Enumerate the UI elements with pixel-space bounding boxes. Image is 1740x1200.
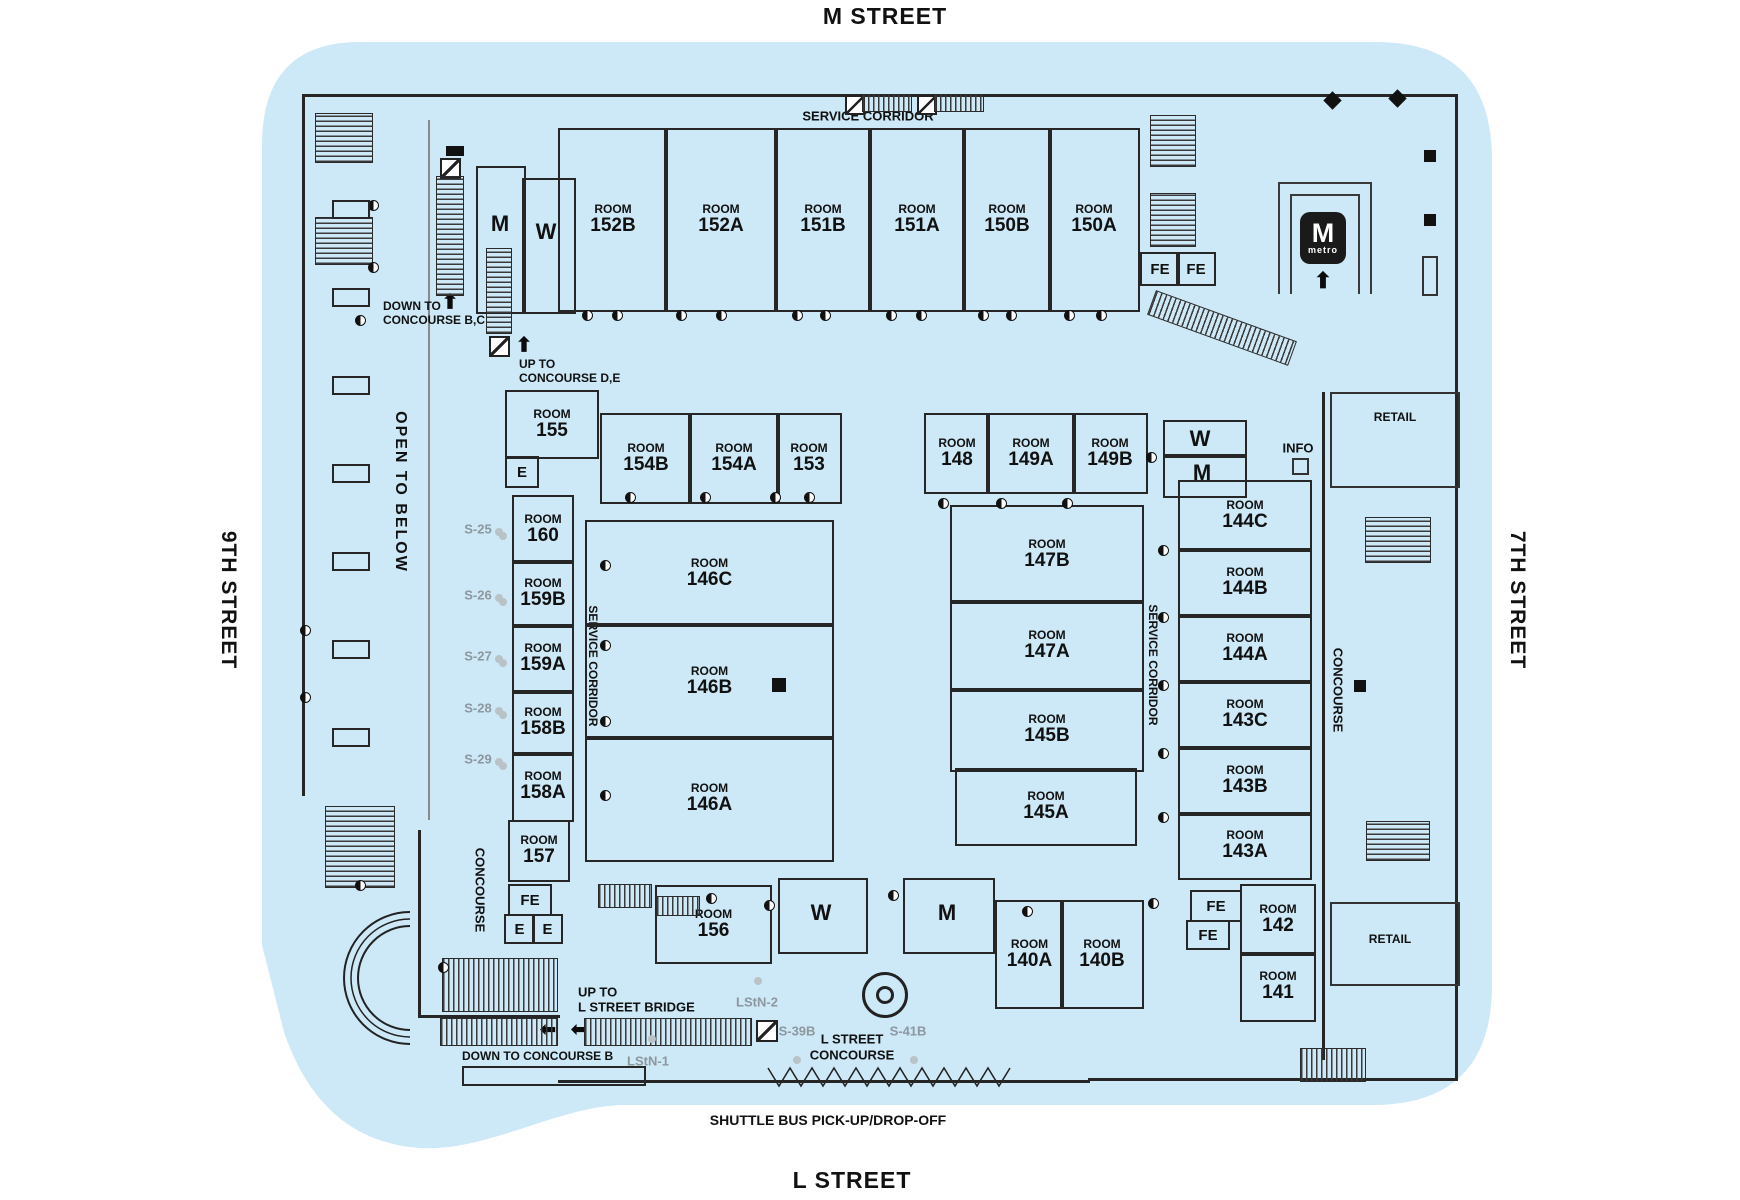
door-marker <box>1158 545 1169 556</box>
info-desk-icon <box>1292 458 1309 475</box>
location-dot <box>754 977 762 985</box>
room-number: 143A <box>1222 841 1267 863</box>
door-marker <box>368 262 379 273</box>
down-concourse-bc-label-2: CONCOURSE B,C <box>383 314 485 328</box>
room-number: 145B <box>1024 725 1069 747</box>
room-141: ROOM141 <box>1240 952 1316 1022</box>
stair-code-s-25: S-25 <box>464 523 491 538</box>
room-158A: ROOM158A <box>512 752 574 822</box>
door-marker <box>706 893 717 904</box>
escalator-hatch <box>584 1018 752 1046</box>
room-word: ROOM <box>1226 632 1263 644</box>
stair-hatch <box>1365 517 1431 563</box>
room-number: 143C <box>1222 710 1267 732</box>
restroom-label-bottom-m: M <box>938 900 956 926</box>
door-marker <box>716 310 727 321</box>
room-160: ROOM160 <box>512 495 574 564</box>
door-marker <box>938 498 949 509</box>
column-marker <box>1424 214 1436 226</box>
room-151A: ROOM151A <box>868 128 966 312</box>
door-marker <box>1006 310 1017 321</box>
location-dot <box>648 1035 656 1043</box>
up-concourse-de-label-1: UP TO <box>519 358 555 372</box>
door-marker <box>600 790 611 801</box>
location-dot <box>793 1056 801 1064</box>
open-to-below-label: OPEN TO BELOW <box>391 411 409 573</box>
door-marker <box>764 900 775 911</box>
facility-fe-top-1: FE <box>1140 252 1180 286</box>
door-marker <box>600 716 611 727</box>
column-pill <box>332 728 370 747</box>
room-154B: ROOM154B <box>600 413 692 504</box>
location-dot <box>499 762 507 770</box>
room-number: 145A <box>1023 802 1068 824</box>
code-s41b: S-41B <box>890 1025 927 1040</box>
room-word: ROOM <box>524 642 561 654</box>
door-marker <box>300 625 311 636</box>
code-lstn2: LStN-2 <box>736 996 778 1011</box>
room-number: 148 <box>941 449 973 471</box>
room-number: 149A <box>1008 449 1053 471</box>
door-marker <box>300 692 311 703</box>
room-number: 143B <box>1222 776 1267 798</box>
room-word: ROOM <box>1028 538 1065 550</box>
room-154A: ROOM154A <box>688 413 780 504</box>
room-number: 144B <box>1222 578 1267 600</box>
retail-bottom-label: RETAIL <box>1369 933 1411 947</box>
room-word: ROOM <box>804 203 841 215</box>
stair-code-s-27: S-27 <box>464 650 491 665</box>
retail-top-label: RETAIL <box>1374 411 1416 425</box>
l-street-concourse-label-1: L STREET <box>821 1033 884 1048</box>
room-word: ROOM <box>695 908 732 920</box>
location-dot <box>499 598 507 606</box>
door-marker <box>1022 906 1033 917</box>
room-word: ROOM <box>1091 437 1128 449</box>
facility-fe-right-2: FE <box>1186 920 1230 950</box>
room-144B: ROOM144B <box>1178 548 1312 618</box>
stair-hatch <box>1150 115 1196 167</box>
room-148: ROOM148 <box>924 413 990 494</box>
facility-e-155: E <box>505 456 539 488</box>
room-159A: ROOM159A <box>512 624 574 694</box>
room-147A: ROOM147A <box>950 600 1144 692</box>
door-marker <box>625 492 636 503</box>
room-146B: ROOM146B <box>585 623 834 740</box>
stair-hatch <box>1150 193 1196 247</box>
room-146A: ROOM146A <box>585 736 834 862</box>
facility-fe-left: FE <box>508 884 552 916</box>
room-word: ROOM <box>790 442 827 454</box>
room-number: 150A <box>1071 215 1116 237</box>
room-number: 149B <box>1087 449 1132 471</box>
room-word: ROOM <box>1011 938 1048 950</box>
restroom-tl-w <box>522 178 576 314</box>
room-word: ROOM <box>1259 903 1296 915</box>
l-street-concourse-strip <box>462 1066 646 1086</box>
wall-concourse-left <box>418 830 421 1018</box>
room-word: ROOM <box>594 203 631 215</box>
column-marker <box>1354 680 1366 692</box>
room-146C: ROOM146C <box>585 520 834 627</box>
door-marker <box>700 492 711 503</box>
location-dot <box>499 532 507 540</box>
facility-e-left-2: E <box>532 914 563 944</box>
door-marker <box>1158 612 1169 623</box>
shuttle-bus-label: SHUTTLE BUS PICK-UP/DROP-OFF <box>710 1112 946 1128</box>
column-pill <box>332 640 370 659</box>
door-marker <box>1064 310 1075 321</box>
room-word: ROOM <box>715 442 752 454</box>
room-150B: ROOM150B <box>962 128 1052 312</box>
escalator-hatch <box>656 896 700 916</box>
door-marker <box>1096 310 1107 321</box>
stair-code-s-26: S-26 <box>464 589 491 604</box>
street-label-9th: 9TH STREET <box>216 531 240 669</box>
column-marker <box>446 146 464 156</box>
street-label-l: L STREET <box>793 1167 912 1193</box>
room-143A: ROOM143A <box>1178 812 1312 880</box>
room-word: ROOM <box>898 203 935 215</box>
room-word: ROOM <box>691 665 728 677</box>
location-dot <box>910 1056 918 1064</box>
column-pill <box>332 200 370 219</box>
room-number: 156 <box>698 920 730 942</box>
room-word: ROOM <box>1012 437 1049 449</box>
door-marker <box>916 310 927 321</box>
room-number: 147B <box>1024 550 1069 572</box>
column-pill <box>332 552 370 571</box>
escalator-up-arrow-icon-de: ⬆ <box>516 333 533 358</box>
room-number: 154B <box>623 454 668 476</box>
room-143B: ROOM143B <box>1178 746 1312 816</box>
room-word: ROOM <box>691 557 728 569</box>
door-marker <box>1158 680 1169 691</box>
spiral-stair-core <box>876 986 894 1004</box>
street-label-7th: 7TH STREET <box>1505 531 1529 669</box>
planter-marker <box>1422 256 1438 296</box>
street-label-m: M STREET <box>823 3 947 29</box>
room-word: ROOM <box>627 442 664 454</box>
room-159B: ROOM159B <box>512 560 574 628</box>
room-word: ROOM <box>1027 790 1064 802</box>
room-number: 140B <box>1079 950 1124 972</box>
room-number: 144C <box>1222 511 1267 533</box>
restroom-label-bottom-w: W <box>811 900 832 926</box>
door-marker <box>676 310 687 321</box>
room-number: 141 <box>1262 982 1294 1004</box>
stair-hatch <box>486 248 512 334</box>
room-word: ROOM <box>1226 566 1263 578</box>
column-pill <box>332 464 370 483</box>
room-word: ROOM <box>988 203 1025 215</box>
room-word: ROOM <box>524 770 561 782</box>
room-158B: ROOM158B <box>512 690 574 756</box>
door-marker <box>804 492 815 503</box>
restroom-label-tl-w: W <box>536 219 557 245</box>
room-word: ROOM <box>1226 829 1263 841</box>
room-word: ROOM <box>520 834 557 846</box>
room-number: 146B <box>687 677 732 699</box>
room-number: 157 <box>523 846 555 868</box>
room-word: ROOM <box>702 203 739 215</box>
room-word: ROOM <box>524 577 561 589</box>
door-marker <box>355 315 366 326</box>
room-144A: ROOM144A <box>1178 614 1312 684</box>
room-number: 159B <box>520 589 565 611</box>
door-marker <box>1146 452 1157 463</box>
stair-hatch <box>1366 821 1430 861</box>
column-marker <box>1424 150 1436 162</box>
door-marker <box>600 560 611 571</box>
room-147B: ROOM147B <box>950 505 1144 604</box>
room-number: 152B <box>590 215 635 237</box>
stair-code-s-29: S-29 <box>464 753 491 768</box>
retail-top-box <box>1330 392 1460 488</box>
door-marker <box>978 310 989 321</box>
escalator-hatch <box>442 958 558 1012</box>
room-number: 152A <box>698 215 743 237</box>
room-word: ROOM <box>524 513 561 525</box>
metro-logo-m: M <box>1312 221 1335 245</box>
room-149A: ROOM149A <box>986 413 1076 494</box>
metro-logo-text: metro <box>1308 245 1338 255</box>
stair-code-s-28: S-28 <box>464 702 491 717</box>
room-143C: ROOM143C <box>1178 680 1312 750</box>
room-word: ROOM <box>1028 629 1065 641</box>
door-marker <box>792 310 803 321</box>
door-marker <box>612 310 623 321</box>
location-dot <box>499 711 507 719</box>
code-lstn1: LStN-1 <box>627 1055 669 1070</box>
room-number: 158A <box>520 782 565 804</box>
room-number: 153 <box>793 454 825 476</box>
room-word: ROOM <box>1226 698 1263 710</box>
room-word: ROOM <box>524 706 561 718</box>
room-word: ROOM <box>938 437 975 449</box>
service-corridor-right-label: SERVICE CORRIDOR <box>1145 604 1159 725</box>
up-l-street-bridge-label-1: UP TO <box>578 986 617 1001</box>
door-marker <box>996 498 1007 509</box>
door-marker <box>820 310 831 321</box>
location-dot <box>499 659 507 667</box>
room-word: ROOM <box>1028 713 1065 725</box>
room-153: ROOM153 <box>776 413 842 504</box>
room-number: 144A <box>1222 644 1267 666</box>
door-marker <box>1062 498 1073 509</box>
room-word: ROOM <box>1083 938 1120 950</box>
room-number: 158B <box>520 718 565 740</box>
door-marker <box>888 890 899 901</box>
room-word: ROOM <box>533 408 570 420</box>
room-150A: ROOM150A <box>1048 128 1140 312</box>
room-number: 155 <box>536 420 568 442</box>
room-149B: ROOM149B <box>1072 413 1148 494</box>
room-number: 142 <box>1262 915 1294 937</box>
room-word: ROOM <box>1075 203 1112 215</box>
escalator-hatch <box>598 884 652 908</box>
metro-up-arrow-icon: ⬆ <box>1314 268 1332 294</box>
facility-fe-top-2: FE <box>1176 252 1216 286</box>
l-street-concourse-label-2: CONCOURSE <box>810 1049 895 1064</box>
restroom-label-mid-m: M <box>1193 460 1211 486</box>
door-marker <box>886 310 897 321</box>
escalator-hatch <box>1300 1048 1366 1082</box>
door-marker <box>438 962 449 973</box>
room-157: ROOM157 <box>508 820 570 882</box>
stair-hatch <box>325 806 395 888</box>
down-concourse-b-label: DOWN TO CONCOURSE B <box>462 1050 613 1064</box>
wall-left <box>302 94 305 796</box>
escalator-icon <box>489 336 510 357</box>
up-concourse-de-label-2: CONCOURSE D,E <box>519 372 620 386</box>
door-marker <box>1158 748 1169 759</box>
room-number: 140A <box>1007 950 1052 972</box>
room-number: 146A <box>687 794 732 816</box>
door-marker <box>355 880 366 891</box>
column-pill <box>332 376 370 395</box>
facility-e-left-1: E <box>504 914 535 944</box>
restroom-label-mid-w: W <box>1190 426 1211 452</box>
floor-plan-scene: M STREET L STREET 9TH STREET 7TH STREET … <box>0 0 1740 1200</box>
down-concourse-bc-label-1: DOWN TO <box>383 300 441 314</box>
door-marker <box>1158 812 1169 823</box>
room-number: 146C <box>687 569 732 591</box>
concourse-right-label: CONCOURSE <box>1330 648 1345 733</box>
escalator-icon <box>756 1020 778 1042</box>
room-151B: ROOM151B <box>774 128 872 312</box>
room-145A: ROOM145A <box>955 768 1137 846</box>
wall-concourse-right <box>1322 392 1325 1060</box>
room-number: 154A <box>711 454 756 476</box>
facility-fe-right-1: FE <box>1190 890 1242 922</box>
code-s39b: S-39B <box>779 1025 816 1040</box>
stair-hatch <box>315 217 373 265</box>
room-155: ROOM155 <box>505 390 599 459</box>
info-label: INFO <box>1282 442 1313 457</box>
escalator-hatch <box>934 94 984 112</box>
door-marker <box>1148 898 1159 909</box>
door-marker <box>770 492 781 503</box>
room-word: ROOM <box>1259 970 1296 982</box>
metro-logo: M metro <box>1300 212 1346 264</box>
room-number: 159A <box>520 654 565 676</box>
room-number: 151B <box>800 215 845 237</box>
room-142: ROOM142 <box>1240 884 1316 956</box>
room-number: 160 <box>527 525 559 547</box>
up-l-street-bridge-label-2: L STREET BRIDGE <box>578 1001 695 1016</box>
wall-bottom-right <box>1088 1078 1458 1081</box>
room-word: ROOM <box>1226 499 1263 511</box>
room-number: 150B <box>984 215 1029 237</box>
escalator-hatch <box>862 94 912 112</box>
column-pill <box>332 288 370 307</box>
room-140B: ROOM140B <box>1060 900 1144 1009</box>
restroom-label-tl-m: M <box>491 211 509 237</box>
door-marker <box>582 310 593 321</box>
room-number: 151A <box>894 215 939 237</box>
room-152A: ROOM152A <box>664 128 778 312</box>
stair-hatch <box>315 113 373 163</box>
wall-open-below-edge <box>428 120 430 820</box>
room-word: ROOM <box>691 782 728 794</box>
escalator-hatch <box>440 1018 558 1046</box>
stair-hatch <box>436 176 464 296</box>
room-number: 147A <box>1024 641 1069 663</box>
door-marker <box>600 640 611 651</box>
room-word: ROOM <box>1226 764 1263 776</box>
room-145B: ROOM145B <box>950 688 1144 772</box>
concourse-left-label: CONCOURSE <box>472 848 487 933</box>
